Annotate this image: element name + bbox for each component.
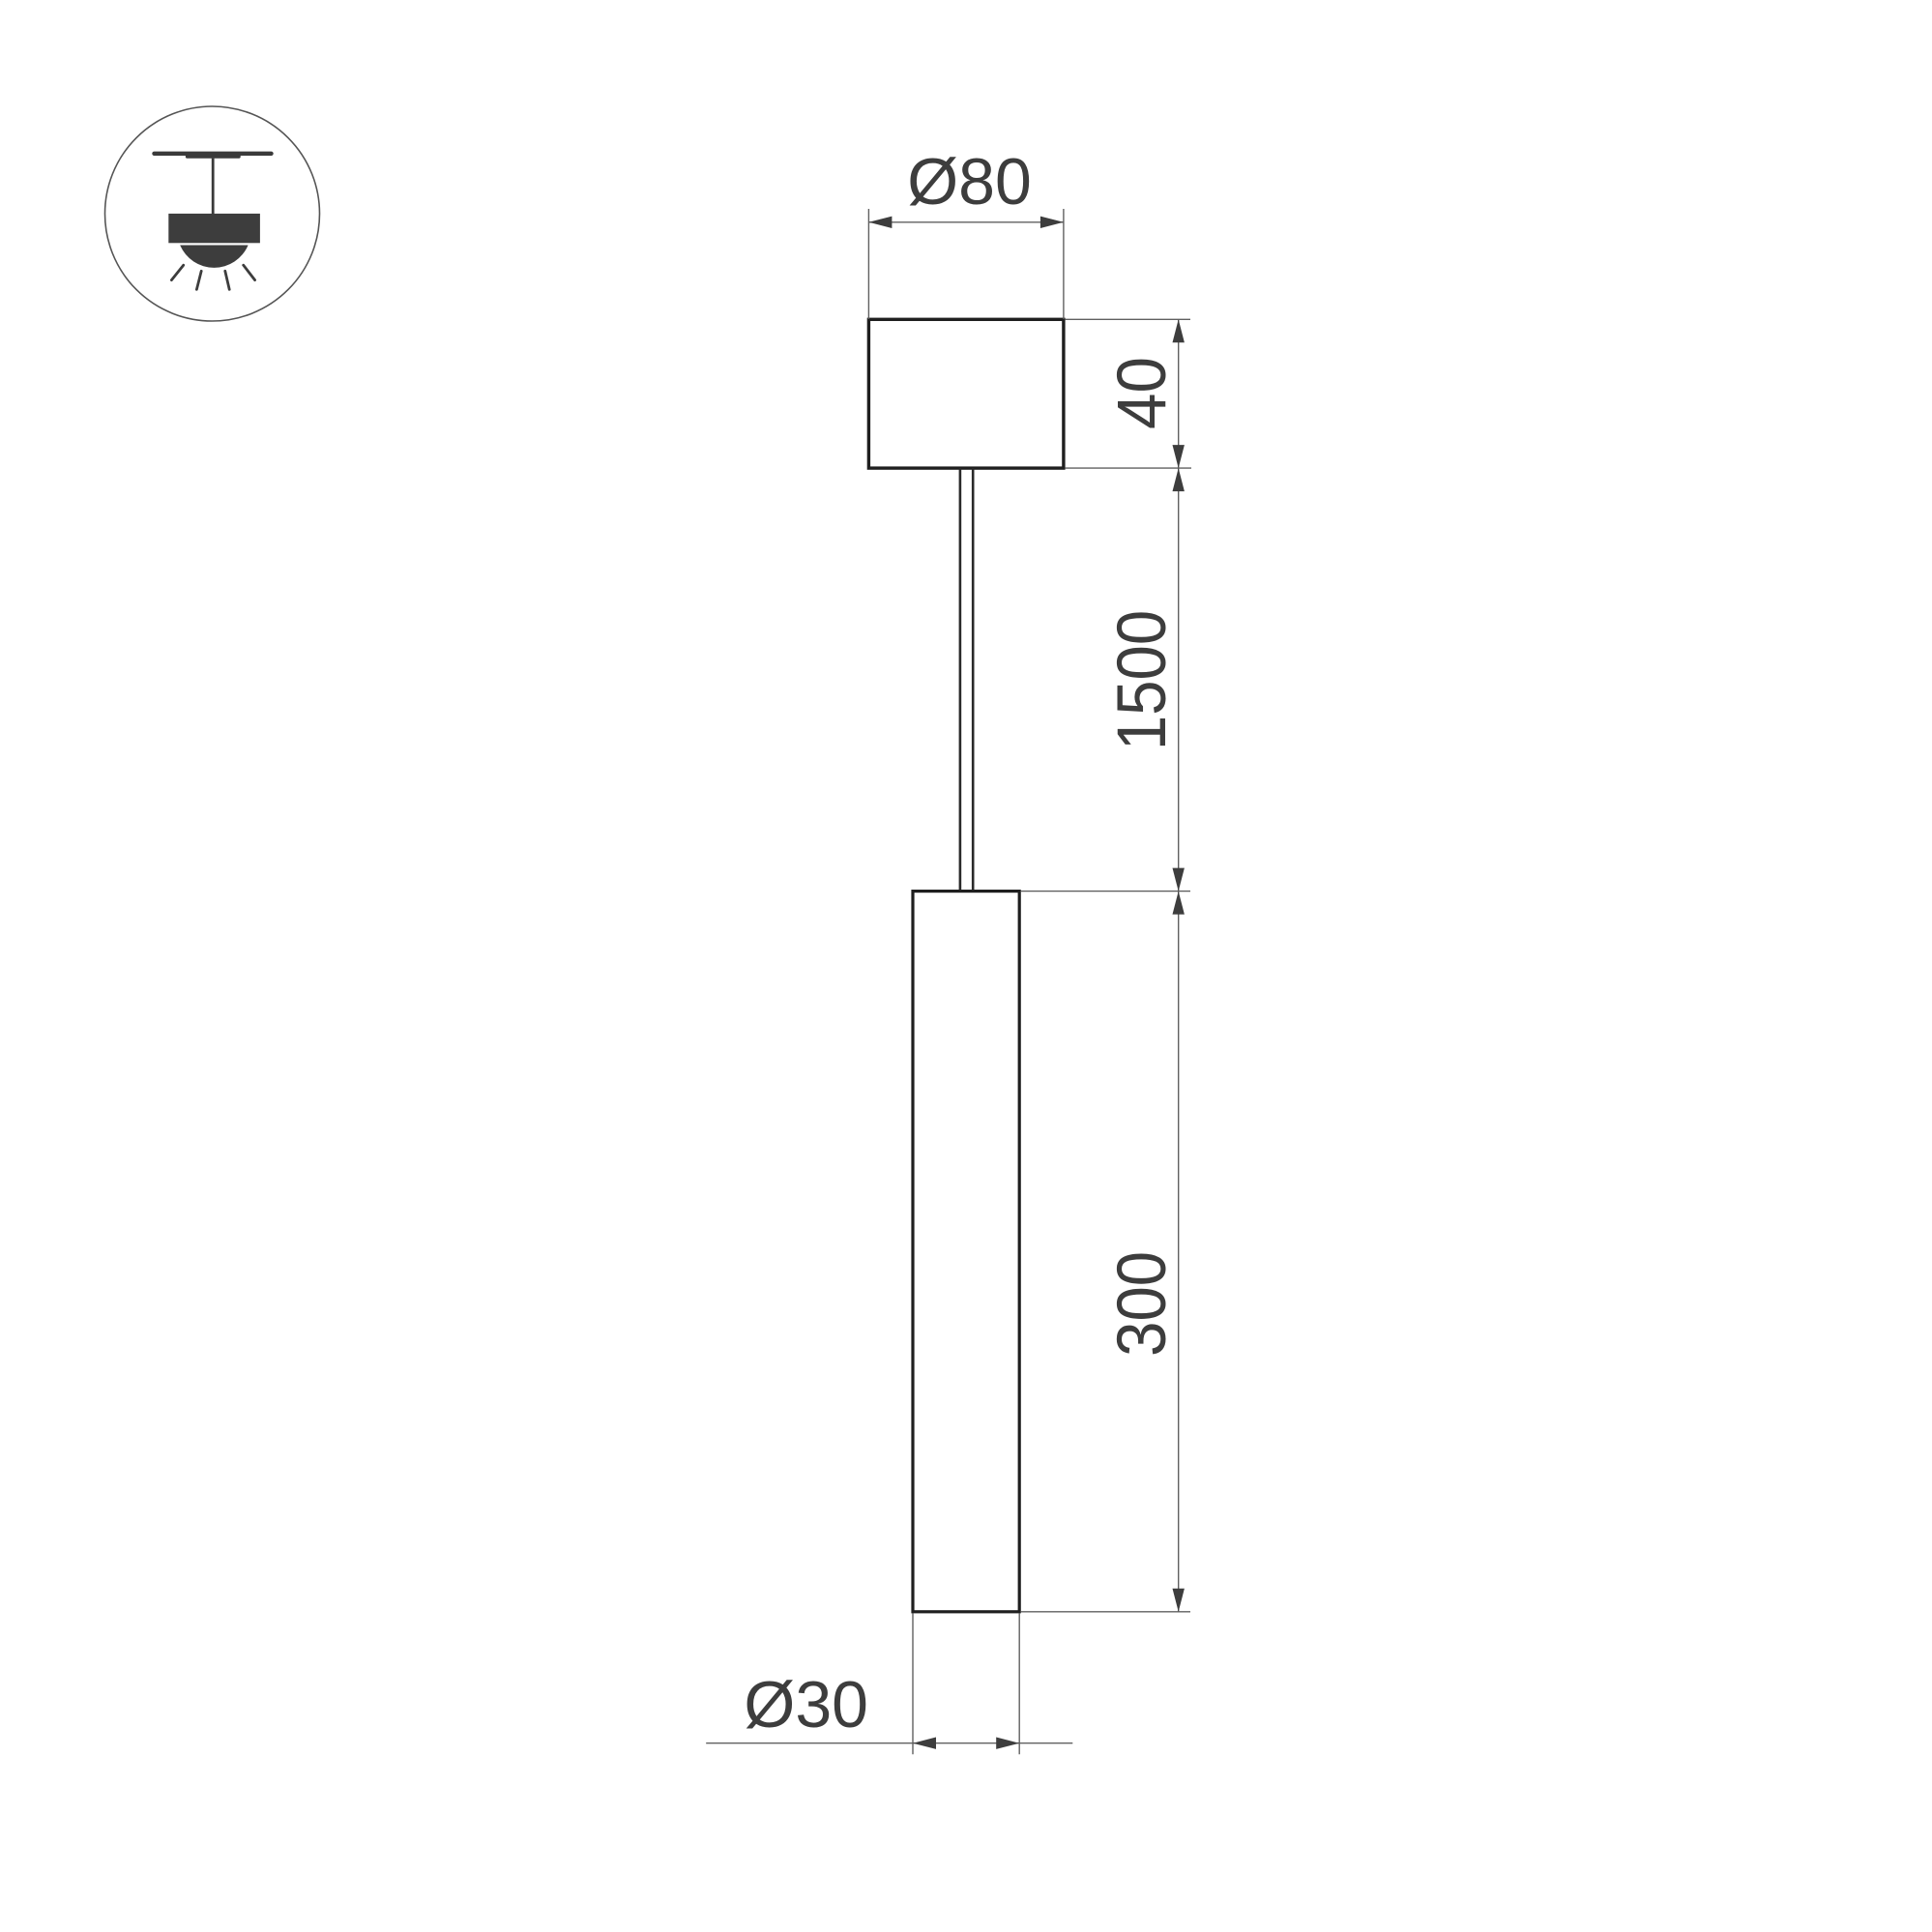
svg-text:Ø30: Ø30 bbox=[744, 1668, 868, 1742]
svg-text:1500: 1500 bbox=[1104, 610, 1181, 750]
svg-text:300: 300 bbox=[1104, 1251, 1181, 1357]
svg-text:40: 40 bbox=[1102, 357, 1180, 429]
svg-text:Ø80: Ø80 bbox=[907, 145, 1032, 219]
